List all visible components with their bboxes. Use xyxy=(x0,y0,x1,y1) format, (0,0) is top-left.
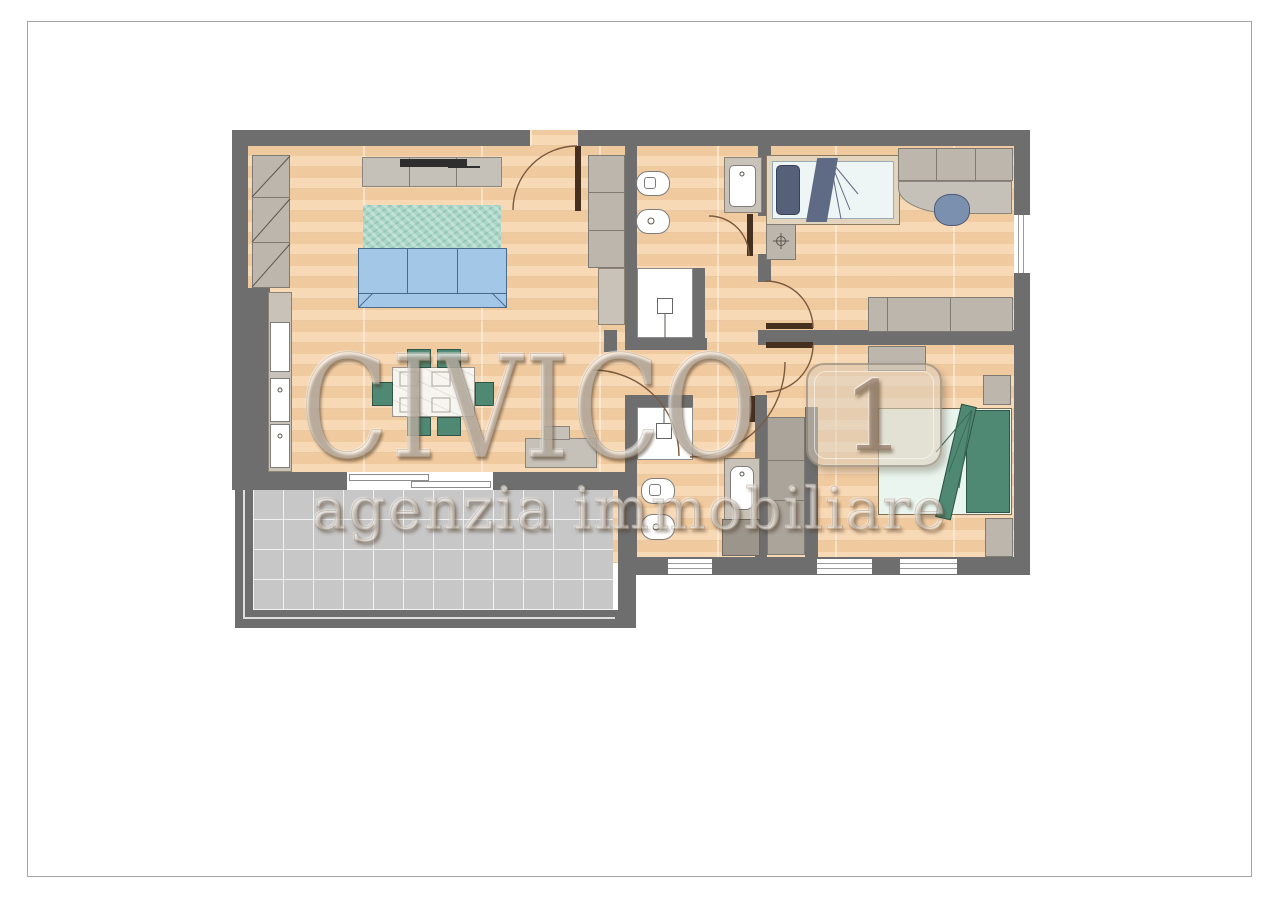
watermark-brand: CIVICO xyxy=(300,338,760,480)
kitchen-knob-1 xyxy=(278,388,282,392)
closet-diagonal-2 xyxy=(252,199,290,242)
bath1-bidet-drain-icon xyxy=(648,218,654,224)
nightstand-crosshair-lines xyxy=(773,233,789,249)
kitchen-knob-2 xyxy=(278,434,282,438)
bed1-fold-line-1 xyxy=(830,160,858,194)
floorplan-page: CIVICO 1 agenzia immobiliare xyxy=(0,0,1280,905)
bedroom1-door-arc xyxy=(766,281,813,328)
entrance-door-arc xyxy=(513,146,577,210)
watermark-tagline: agenzia immobiliare xyxy=(312,480,948,538)
watermark-number: 1 xyxy=(808,369,940,465)
closet-diagonal-1 xyxy=(252,156,290,197)
bath1-door-arc xyxy=(709,216,749,256)
watermark-number-box: 1 xyxy=(806,363,942,467)
bed1-fold-line-2 xyxy=(830,160,850,210)
bed1-fold-line-3 xyxy=(830,160,841,219)
sofa-corner-line-right xyxy=(492,293,506,307)
sofa-corner-line-left xyxy=(359,293,373,307)
bath1-sink-tap-icon xyxy=(740,172,744,176)
bed2-fold-line-3 xyxy=(959,410,972,488)
closet-diagonal-3 xyxy=(252,244,290,287)
bed2-fold-line-2 xyxy=(949,410,972,472)
